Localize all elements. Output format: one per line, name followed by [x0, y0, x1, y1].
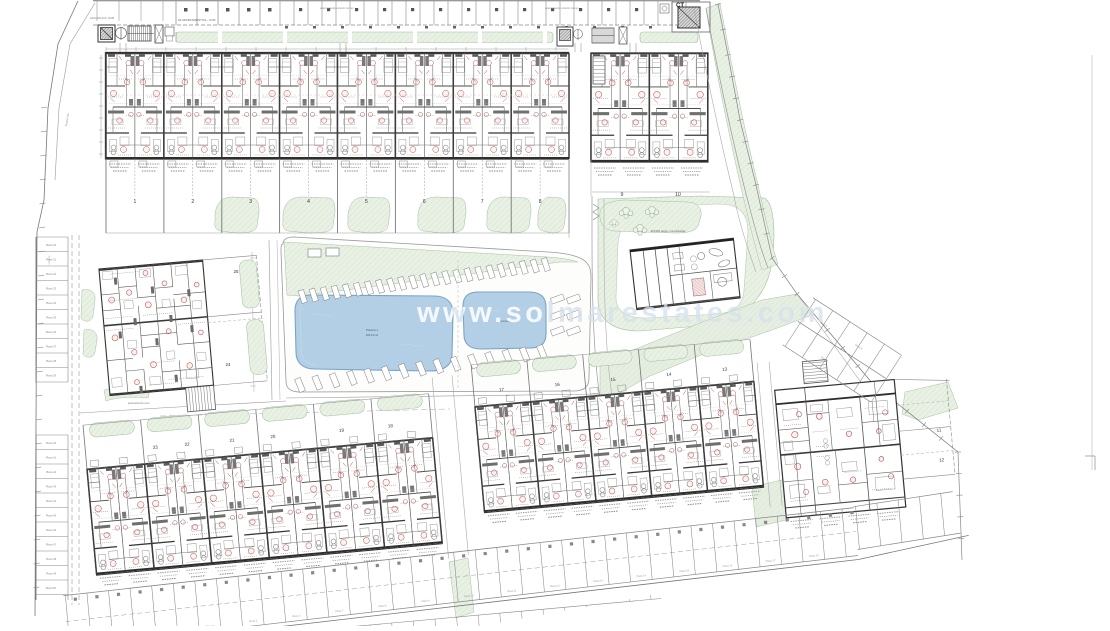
svg-text:Plaza 35: Plaza 35	[46, 316, 57, 320]
svg-text:13: 13	[722, 367, 728, 372]
svg-text:20: 20	[270, 434, 276, 439]
svg-text:Piscina 1: Piscina 1	[366, 328, 379, 332]
svg-text:ZAGUAN ACC. NUM: ZAGUAN ACC. NUM	[90, 16, 114, 20]
svg-text:5: 5	[365, 199, 368, 205]
svg-text:2: 2	[191, 199, 194, 205]
svg-text:Plaza 50: Plaza 50	[46, 586, 57, 590]
svg-text:23: 23	[153, 444, 159, 449]
svg-text:12: 12	[939, 457, 945, 462]
svg-text:21: 21	[229, 437, 235, 442]
svg-text:Plaza 34: Plaza 34	[46, 301, 57, 305]
svg-text:Plaza 48: Plaza 48	[46, 557, 57, 561]
svg-text:9: 9	[621, 192, 624, 198]
svg-text:26 APARTAMENTOS - COP.: 26 APARTAMENTOS - COP.	[178, 18, 216, 22]
svg-text:15: 15	[610, 377, 616, 382]
svg-text:3: 3	[249, 199, 252, 205]
svg-text:Plaza 42: Plaza 42	[46, 470, 57, 474]
svg-text:466.10 m2: 466.10 m2	[366, 333, 379, 337]
svg-text:aparcamiento exterior comun: aparcamiento exterior comun	[320, 6, 354, 10]
svg-text:Plaza 41: Plaza 41	[46, 456, 57, 460]
svg-text:16: 16	[555, 382, 561, 387]
svg-text:4: 4	[307, 199, 310, 205]
svg-text:aparcamiento exterior comun: aparcamiento exterior comun	[545, 6, 579, 10]
svg-text:aparcamiento com.: aparcamiento com.	[128, 401, 150, 405]
svg-text:22: 22	[184, 442, 190, 447]
svg-text:Plaza 40: Plaza 40	[46, 441, 57, 445]
svg-text:Plaza 33: Plaza 33	[46, 287, 57, 291]
svg-text:25: 25	[233, 269, 239, 274]
svg-text:10: 10	[675, 192, 681, 198]
svg-text:Plaza 47: Plaza 47	[46, 543, 57, 547]
svg-text:ZONAS depor. comunitarias: ZONAS depor. comunitarias	[651, 229, 686, 233]
svg-text:1: 1	[134, 199, 137, 205]
svg-text:19: 19	[339, 428, 345, 433]
svg-text:24: 24	[225, 362, 231, 367]
svg-text:Plaza 44: Plaza 44	[46, 499, 57, 503]
svg-text:Plaza 38: Plaza 38	[46, 359, 57, 363]
svg-text:Plaza 37: Plaza 37	[46, 345, 57, 349]
svg-text:Plaza 45: Plaza 45	[46, 514, 57, 518]
svg-text:Plaza 31: Plaza 31	[46, 258, 57, 262]
svg-text:7: 7	[481, 199, 484, 205]
svg-text:Plaza 46: Plaza 46	[46, 528, 57, 532]
svg-text:14: 14	[666, 372, 672, 377]
svg-text:Plaza 49: Plaza 49	[46, 572, 57, 576]
svg-text:CT: CT	[676, 3, 684, 9]
svg-text:Plaza 30: Plaza 30	[46, 243, 57, 247]
svg-text:Plaza 32: Plaza 32	[46, 272, 57, 276]
svg-text:Plaza 39: Plaza 39	[46, 374, 57, 378]
svg-text:17: 17	[499, 387, 505, 392]
svg-text:6: 6	[423, 199, 426, 205]
svg-text:18: 18	[388, 423, 394, 428]
svg-text:Plaza 36: Plaza 36	[46, 330, 57, 334]
svg-text:8: 8	[539, 199, 542, 205]
svg-text:Plaza 43: Plaza 43	[46, 485, 57, 489]
